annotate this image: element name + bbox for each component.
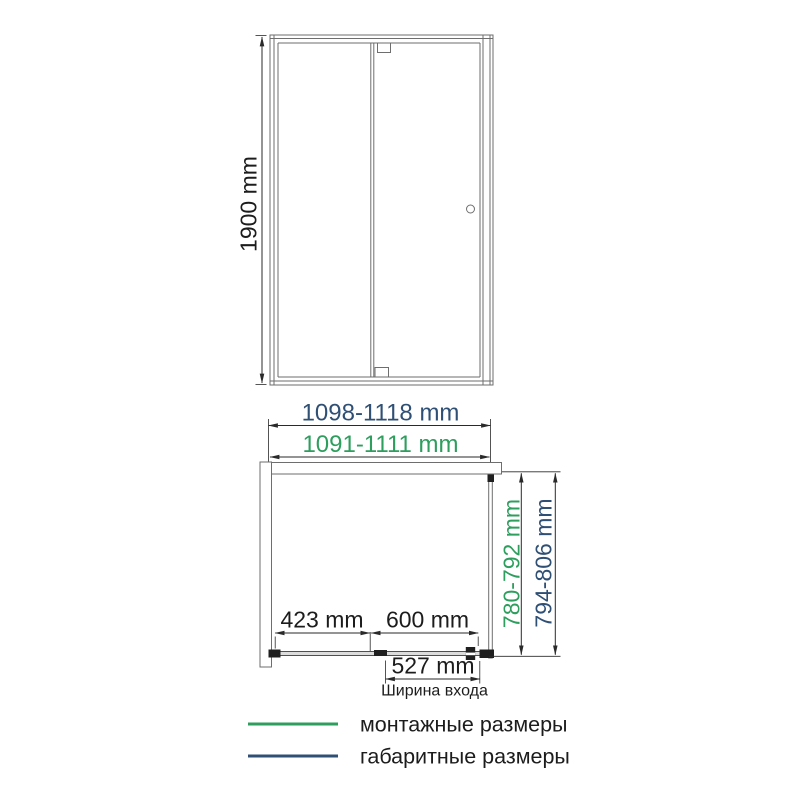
front-left-profile-block [269,650,281,658]
door-segment-label: 600 mm [386,607,469,633]
diagram-svg: 1900 mm 1098-1118 mm 1091-1111 mm 423 mm… [0,0,800,800]
overall-depth-label: 794-806 mm [531,498,557,627]
top-view: 423 mm 600 mm 527 mm Ширина входа 780-79… [260,462,561,700]
legend: монтажные размеры габаритные размеры [248,713,570,769]
mounting-depth-label: 780-792 mm [499,499,525,628]
mounting-width-label: 1091-1111 mm [302,431,458,458]
legend-mounting-label: монтажные размеры [360,713,568,737]
right-side-glass [489,474,493,658]
right-wall-top-connector [488,475,495,483]
legend-overall-label: габаритные размеры [360,745,570,769]
front-outer-frame [270,35,493,385]
overall-width-label: 1098-1118 mm [302,400,460,427]
shower-dimensions-diagram: 1900 mm 1098-1118 mm 1091-1111 mm 423 mm… [0,0,800,800]
door-handle-knob [467,205,475,213]
back-panel [261,463,502,475]
height-dimension-label: 1900 mm [236,156,262,252]
front-right-corner-block [480,650,495,659]
width-dimensions: 1098-1118 mm 1091-1111 mm [269,400,491,463]
door-bottom-bracket [375,368,389,378]
door-top-bracket [378,43,391,53]
entrance-caption: Ширина входа [381,683,488,700]
door-pivot-block [374,650,387,656]
fixed-segment-label: 423 mm [280,607,363,633]
entrance-width-label: 527 mm [391,653,474,679]
left-side-wall [260,462,272,667]
front-view: 1900 mm [236,35,494,385]
